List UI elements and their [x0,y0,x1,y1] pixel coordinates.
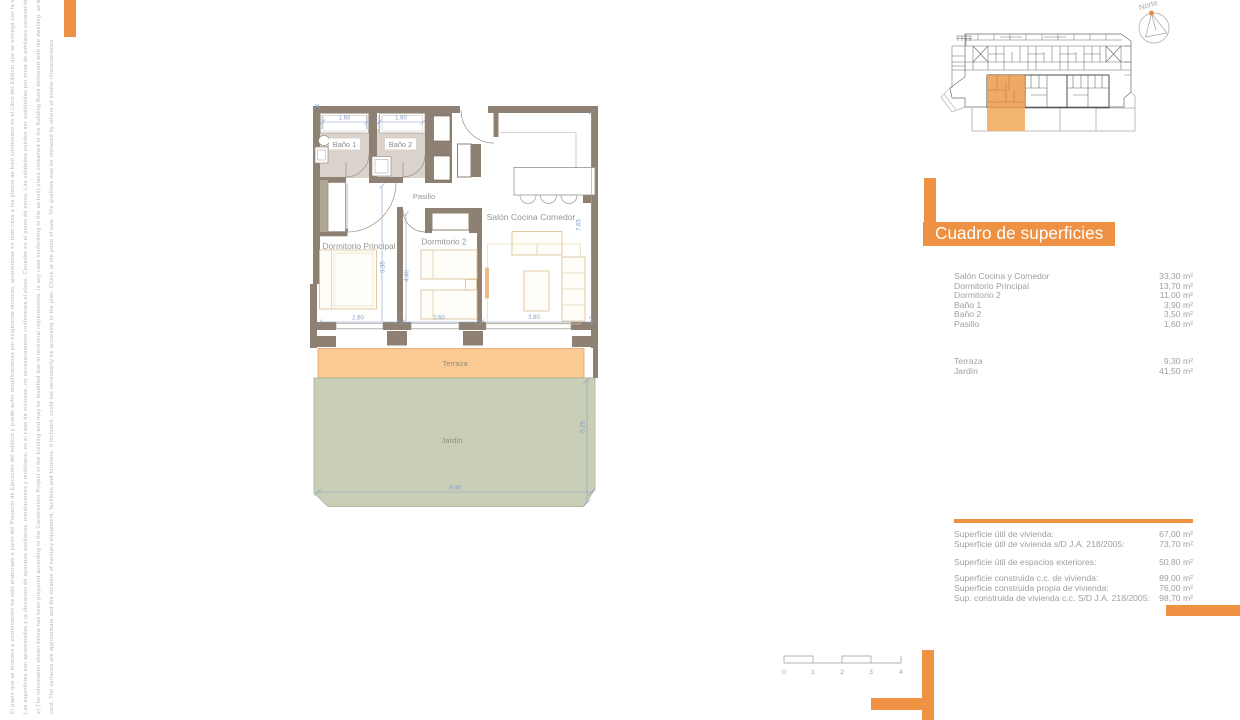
svg-text:Terraza: Terraza [442,359,468,368]
svg-text:Dormitorio 2: Dormitorio 2 [421,237,467,247]
svg-text:Salón Cocina Comedor: Salón Cocina Comedor [487,212,576,222]
svg-text:1.60: 1.60 [339,116,351,122]
svg-text:9.46: 9.46 [449,486,461,492]
svg-text:Jardín: Jardín [442,436,463,445]
svg-text:1: 1 [811,669,815,676]
svg-text:4.40: 4.40 [405,270,411,282]
svg-text:5.25: 5.25 [581,421,587,433]
svg-text:2.60: 2.60 [352,316,364,322]
svg-text:5.35: 5.35 [381,261,387,273]
svg-text:Baño 2: Baño 2 [389,140,412,149]
svg-text:3.80: 3.80 [528,315,540,321]
svg-text:3: 3 [869,669,873,676]
svg-text:7.65: 7.65 [577,219,583,231]
svg-text:0: 0 [782,669,786,676]
svg-text:Baño 1: Baño 1 [333,140,356,149]
svg-text:Norte: Norte [1138,0,1159,12]
svg-text:Pasillo: Pasillo [413,192,435,201]
svg-text:2: 2 [840,669,844,676]
svg-text:4: 4 [899,669,903,676]
svg-text:2.60: 2.60 [433,316,445,322]
svg-text:1.60: 1.60 [395,116,407,122]
svg-text:Dormitorio Principal: Dormitorio Principal [322,241,395,251]
